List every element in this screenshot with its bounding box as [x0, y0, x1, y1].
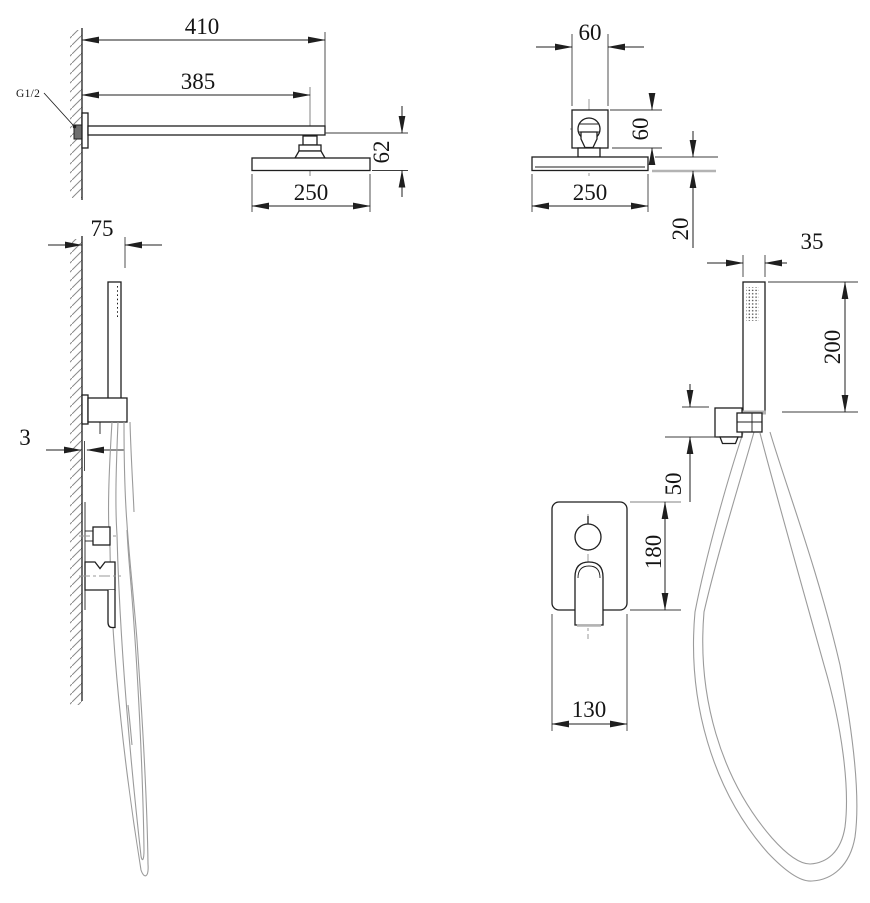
dimension-head-thickness: 20 [652, 131, 718, 248]
hose-loop-outer [110, 524, 148, 876]
ball-joint-collar [299, 145, 321, 151]
technical-drawing-page: 410 385 G1/2 62 [0, 0, 870, 903]
dim-label-50: 50 [661, 473, 686, 496]
hose-loop-outer [694, 432, 857, 881]
dim-label-250: 250 [294, 180, 329, 205]
hose-side-loop [109, 422, 149, 876]
dimension-holder-height: 50 [661, 384, 716, 502]
head-mount-cone [295, 151, 325, 158]
dim-label-130: 130 [572, 697, 607, 722]
wall-hatch [70, 30, 82, 198]
shower-head-front [532, 157, 648, 171]
hose-loop-inner [117, 530, 144, 860]
leader-dot [73, 125, 77, 129]
dim-label-180: 180 [641, 535, 666, 570]
dim-label-200: 200 [820, 330, 845, 365]
holder-flange [82, 395, 88, 424]
dimension-head-size: 250 [252, 174, 370, 212]
dimension-plate-width: 130 [552, 614, 627, 731]
wall-hatch [70, 239, 82, 705]
dim-label-410: 410 [185, 14, 220, 39]
dimension-plate-height: 180 [630, 502, 681, 610]
holder-bracket-side [88, 398, 127, 422]
diverter-knob-side [93, 527, 110, 545]
rain-shower-front-view: 60 60 20 [532, 20, 718, 248]
hand-shower-side-view: 75 3 [19, 216, 162, 876]
dimension-handset-length: 200 [768, 282, 858, 412]
shower-arm [88, 126, 325, 135]
dim-label-62: 62 [369, 141, 394, 164]
dimension-holder-depth: 75 [48, 216, 162, 268]
dim-label-385: 385 [181, 69, 216, 94]
wall-flange [82, 113, 88, 148]
holder-attachment [737, 413, 762, 432]
dimension-head-drop: 62 [325, 106, 408, 197]
spray-face-dots [746, 287, 759, 321]
ball-joint-nut [581, 132, 597, 148]
dim-label-60-height: 60 [628, 118, 653, 141]
dimension-head-size-front: 250 [532, 174, 648, 212]
thread-callout: G1/2 [16, 88, 76, 128]
dimension-bracket-height: 60 [610, 93, 662, 165]
hand-shower-front-view: 35 200 50 [552, 229, 858, 881]
shower-installation-diagram: 410 385 G1/2 62 [0, 0, 870, 903]
rain-shower-side-view: 410 385 G1/2 62 [16, 14, 408, 212]
hose-line [116, 422, 118, 535]
dim-label-35: 35 [801, 229, 824, 254]
hose-line [130, 422, 134, 512]
hose-loop-inner [703, 432, 847, 864]
hose-front-loop [694, 432, 857, 881]
outlet-nut [720, 437, 738, 444]
ball-joint-nut [303, 136, 317, 145]
dim-label-250-front: 250 [573, 180, 608, 205]
thread-label: G1/2 [16, 88, 40, 100]
dim-label-20: 20 [668, 218, 693, 241]
dim-label-60-width: 60 [579, 20, 602, 45]
dim-label-3: 3 [19, 425, 31, 450]
shower-head-side [252, 158, 370, 171]
dimension-bracket-width: 60 [536, 20, 644, 106]
dim-label-75: 75 [91, 216, 114, 241]
mixer-lever-side [108, 590, 115, 628]
dimension-handset-width: 35 [707, 229, 824, 277]
diverter-knob [575, 524, 601, 550]
head-stem [578, 148, 600, 157]
hose-line [124, 422, 127, 524]
leader-line [44, 93, 73, 125]
hand-shower-side [108, 282, 121, 402]
